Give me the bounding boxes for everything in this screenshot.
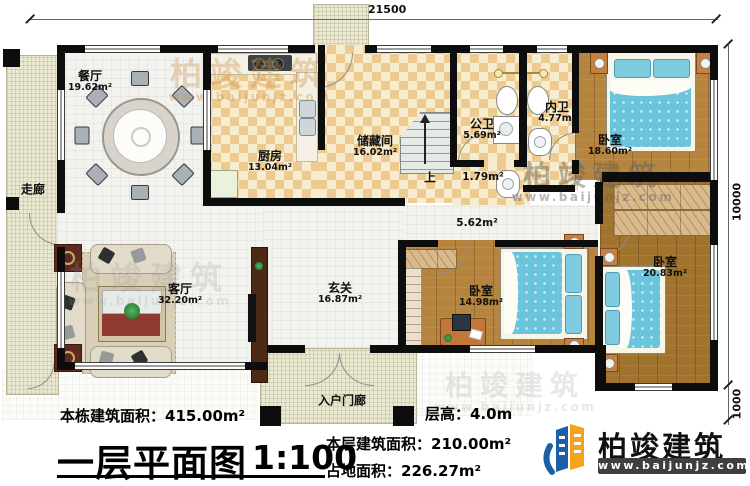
dimension-height: 10000: [731, 183, 744, 221]
pillow: [565, 295, 582, 334]
room-label-inner-bath: 内卫 4.77m²: [538, 101, 576, 125]
small-hall-area-label: 1.79m²: [462, 172, 503, 184]
room-label-dining: 餐厅 19.62m²: [68, 70, 112, 94]
plan-title: 一层平面图: [57, 433, 247, 486]
wall: [523, 185, 575, 192]
wall: [602, 172, 718, 182]
stairs-up-label: 上: [424, 171, 436, 184]
wall: [398, 240, 406, 348]
window: [218, 45, 288, 53]
wall: [710, 45, 718, 80]
floor-plan-page: 21500 10000 1000: [0, 0, 750, 486]
window: [635, 383, 672, 391]
room-label-bedroom-right: 卧室 20.83m²: [643, 256, 687, 280]
land-area-text: 占地面积：226.27m²: [326, 460, 481, 481]
wall: [535, 345, 603, 353]
wall: [57, 362, 75, 370]
pillow: [614, 59, 651, 78]
wall: [245, 362, 267, 370]
wall: [318, 45, 325, 150]
room-label-kitchen: 厨房 13.04m²: [248, 150, 292, 174]
kitchen-sink: [299, 118, 316, 136]
wall: [450, 45, 457, 165]
burner: [253, 58, 265, 70]
dimension-width: 21500: [368, 3, 406, 16]
logo-icon: [540, 420, 592, 480]
computer-monitor: [452, 314, 471, 331]
stair-arrow-head: [420, 114, 430, 123]
room-label-living: 客厅 32.20m²: [158, 283, 202, 307]
window: [470, 45, 503, 53]
window: [377, 45, 431, 53]
wall: [450, 160, 484, 167]
pillow: [605, 272, 620, 307]
plant: [255, 262, 263, 270]
window: [75, 362, 245, 370]
pillar: [6, 197, 19, 210]
burner: [272, 58, 284, 70]
title-underline: [57, 475, 325, 478]
washing-machine-door: [499, 122, 513, 136]
logo-website: www.baijunjz.com: [598, 458, 746, 474]
room-label-bedroom-mid: 卧室 14.98m²: [459, 285, 503, 309]
pillow: [653, 59, 690, 78]
wall: [595, 182, 603, 224]
dining-table-center: [131, 127, 151, 147]
floor-area-text: 本层建筑面积：210.00m²: [326, 433, 511, 454]
pillow: [565, 254, 582, 293]
stair-arrow-line: [424, 122, 426, 164]
wall: [288, 45, 315, 53]
room-label-foyer: 玄关 16.87m²: [318, 282, 362, 306]
window: [710, 245, 718, 340]
fridge: [208, 170, 238, 198]
wall: [370, 345, 470, 353]
pedestal-sink: [496, 86, 518, 115]
wall: [572, 160, 579, 174]
wall: [57, 45, 65, 90]
wardrobe: [613, 184, 715, 210]
toilet: [528, 128, 552, 156]
bed-sheet: [504, 252, 518, 334]
pillow: [605, 310, 620, 345]
room-label-bedroom-top: 卧室 18.60m²: [588, 134, 632, 158]
room-label-storage: 储藏间 16.02m²: [353, 135, 397, 159]
porch-pillar: [393, 406, 414, 426]
foyer-floor: [263, 205, 403, 348]
floor-height-text: 层高：4.0m: [425, 403, 512, 424]
bed-sheet: [620, 270, 632, 348]
wall: [567, 45, 718, 53]
bed-mid: [500, 248, 588, 340]
dimension-porch-depth: 1000: [731, 389, 744, 420]
wall: [57, 160, 65, 213]
back-porch-floor: [313, 4, 369, 49]
plant: [124, 303, 140, 319]
wall: [365, 45, 377, 53]
kitchen-sink: [299, 100, 316, 118]
room-label-corridor: 走廊: [21, 183, 45, 196]
wall: [519, 45, 527, 160]
wall: [203, 45, 211, 90]
wall: [595, 256, 603, 348]
dining-chair: [131, 185, 149, 200]
wall: [267, 345, 305, 353]
window: [470, 345, 535, 353]
window: [57, 90, 65, 160]
porch-pillar: [260, 406, 281, 426]
towel-bar-end: [494, 69, 503, 78]
nightstand: [590, 52, 608, 74]
pillar: [3, 49, 20, 67]
wall: [598, 383, 635, 391]
mid-hall-area-label: 5.62m²: [456, 218, 497, 230]
wall: [710, 340, 718, 391]
room-label-entry-porch: 入户门廊: [318, 394, 366, 407]
wall: [495, 240, 598, 247]
towel-bar-end: [539, 69, 548, 78]
wall: [514, 160, 527, 167]
window: [85, 45, 160, 53]
dining-chair: [75, 127, 90, 145]
window: [537, 45, 567, 53]
wall: [710, 180, 718, 245]
wardrobe: [403, 249, 457, 269]
dimension-line-top: [30, 19, 718, 20]
wardrobe: [613, 210, 715, 236]
wall: [203, 198, 405, 206]
dining-chair: [131, 71, 149, 86]
building-area-text: 本栋建筑面积：415.00m²: [60, 405, 245, 426]
desk-plant: [444, 334, 452, 342]
window: [710, 80, 718, 180]
window: [57, 272, 65, 348]
pass-through-window: [203, 90, 211, 150]
tv-screen: [248, 294, 256, 342]
wall: [57, 247, 65, 272]
dimension-line-right: [728, 45, 729, 425]
room-label-public-bath: 公卫 5.69m²: [463, 118, 501, 142]
